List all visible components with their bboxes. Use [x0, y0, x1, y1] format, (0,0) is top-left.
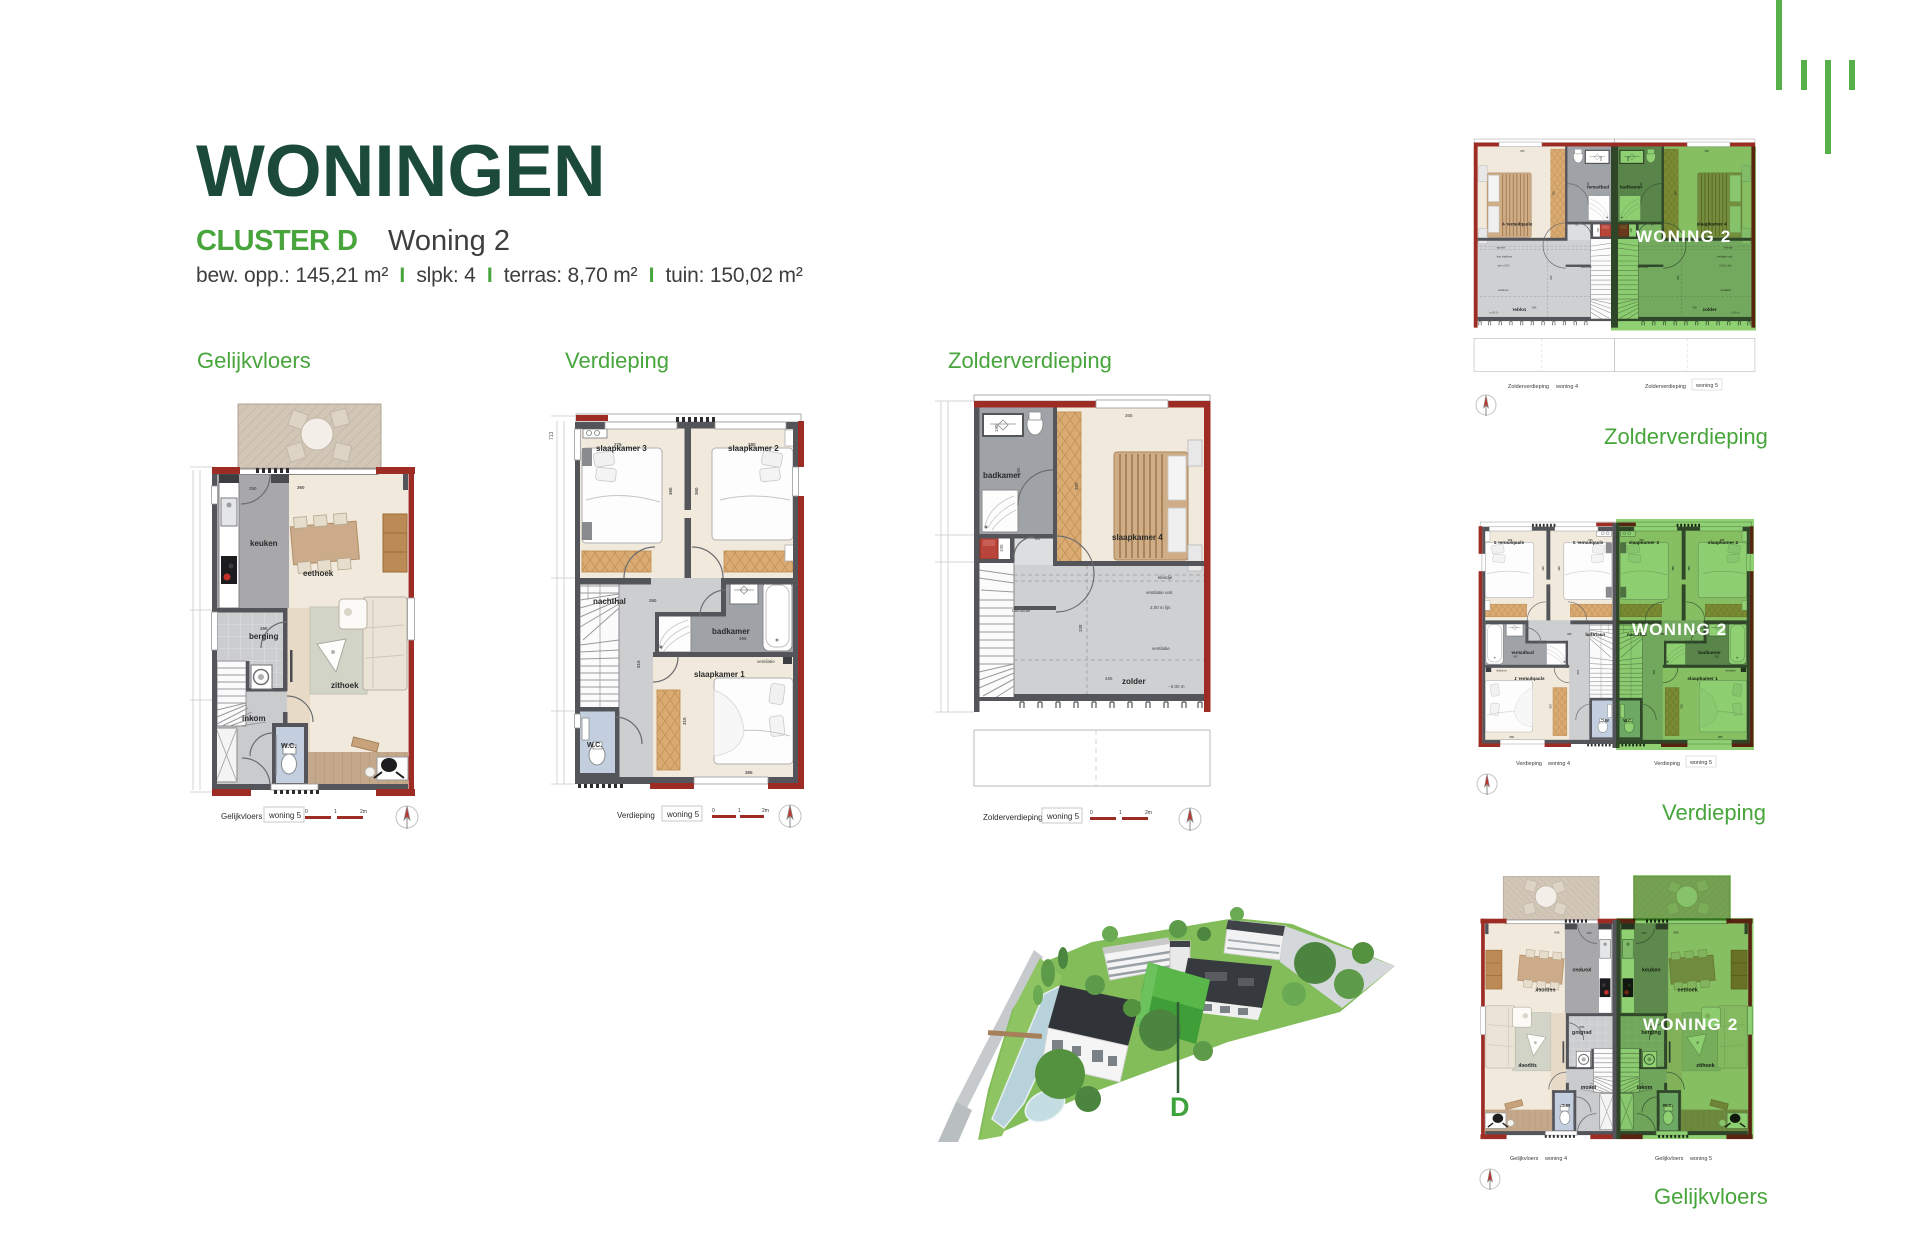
svg-text:woning 5: woning 5	[1046, 812, 1080, 821]
svg-text:Verdieping: Verdieping	[617, 811, 655, 820]
svg-text:woning 4: woning 4	[1544, 1156, 1567, 1162]
svg-text:380: 380	[1074, 482, 1079, 490]
svg-text:360: 360	[297, 485, 305, 490]
svg-text:ventilatie unit: ventilatie unit	[1146, 590, 1173, 595]
svg-text:2.00 m lijn: 2.00 m lijn	[1150, 605, 1171, 610]
svg-text:713: 713	[549, 431, 555, 440]
svg-text:kleedje: kleedje	[1158, 575, 1173, 580]
svg-text:2m: 2m	[762, 808, 769, 814]
svg-text:zithoek: zithoek	[331, 681, 359, 690]
svg-text:Gelijkvloers: Gelijkvloers	[221, 812, 262, 821]
svg-text:265: 265	[260, 626, 268, 631]
svg-text:woning 5: woning 5	[1695, 383, 1718, 389]
svg-text:0: 0	[712, 808, 715, 814]
svg-text:Gelijkvloers: Gelijkvloers	[1655, 1156, 1684, 1162]
svg-text:slaapkamer 3: slaapkamer 3	[596, 444, 647, 453]
svg-text:2m: 2m	[360, 809, 367, 815]
svg-text:woning 5: woning 5	[1689, 1156, 1712, 1162]
svg-text:1: 1	[334, 809, 337, 815]
svg-text:365: 365	[739, 636, 747, 641]
svg-text:2m: 2m	[1145, 810, 1152, 816]
svg-text:Verdieping: Verdieping	[1516, 761, 1542, 767]
svg-text:315: 315	[682, 717, 687, 725]
svg-text:woning 5: woning 5	[1689, 760, 1712, 766]
svg-text:inkom: inkom	[242, 714, 266, 723]
svg-text:woning 4: woning 4	[1547, 761, 1570, 767]
svg-text:woning 4: woning 4	[1555, 384, 1578, 390]
svg-text:eethoek: eethoek	[303, 569, 334, 578]
svg-text:250: 250	[249, 486, 257, 491]
svg-text:zolder: zolder	[1122, 677, 1146, 686]
svg-text:275: 275	[614, 442, 622, 447]
svg-text:1: 1	[738, 808, 741, 814]
svg-text:1: 1	[1119, 810, 1122, 816]
svg-text:keuken: keuken	[250, 539, 278, 548]
svg-text:Gelijkvloers: Gelijkvloers	[1510, 1156, 1539, 1162]
svg-text:berging: berging	[249, 632, 278, 641]
svg-text:365: 365	[745, 770, 753, 775]
svg-text:360: 360	[668, 487, 673, 495]
svg-text:365: 365	[1125, 413, 1133, 418]
svg-text:190: 190	[994, 424, 999, 432]
svg-text:360: 360	[694, 487, 699, 495]
svg-text:260: 260	[649, 598, 657, 603]
svg-text:badkamer: badkamer	[712, 627, 750, 636]
svg-text:338: 338	[1078, 624, 1083, 632]
svg-text:WONING 2: WONING 2	[1636, 227, 1732, 246]
svg-text:465: 465	[1105, 676, 1113, 681]
svg-text:woning 5: woning 5	[268, 811, 302, 820]
svg-text:0: 0	[305, 809, 308, 815]
svg-text:D: D	[1170, 1092, 1190, 1122]
svg-text:280: 280	[748, 442, 756, 447]
svg-text:0: 0	[1090, 810, 1093, 816]
svg-text:slaapkamer 1: slaapkamer 1	[694, 670, 745, 679]
svg-text:W.C.: W.C.	[587, 742, 602, 749]
svg-text:- 0.00 m: - 0.00 m	[1168, 684, 1185, 689]
svg-text:100: 100	[999, 544, 1004, 552]
svg-text:ventilatie: ventilatie	[757, 659, 775, 664]
svg-text:W.C.: W.C.	[281, 743, 296, 750]
svg-text:Zolderverdieping: Zolderverdieping	[1508, 384, 1549, 390]
svg-text:slaapkamer 4: slaapkamer 4	[1112, 533, 1163, 542]
svg-text:ventilatie: ventilatie	[1152, 646, 1170, 651]
svg-text:nachthal: nachthal	[593, 597, 626, 606]
svg-text:WONING 2: WONING 2	[1632, 620, 1728, 639]
svg-text:WONING 2: WONING 2	[1643, 1015, 1739, 1034]
svg-text:Verdieping: Verdieping	[1654, 761, 1680, 767]
svg-text:Zolderverdieping: Zolderverdieping	[983, 813, 1043, 822]
svg-text:badkamer: badkamer	[983, 471, 1021, 480]
svg-text:Zolderverdieping: Zolderverdieping	[1645, 384, 1686, 390]
svg-text:woning 5: woning 5	[666, 810, 700, 819]
svg-text:515: 515	[636, 660, 641, 668]
